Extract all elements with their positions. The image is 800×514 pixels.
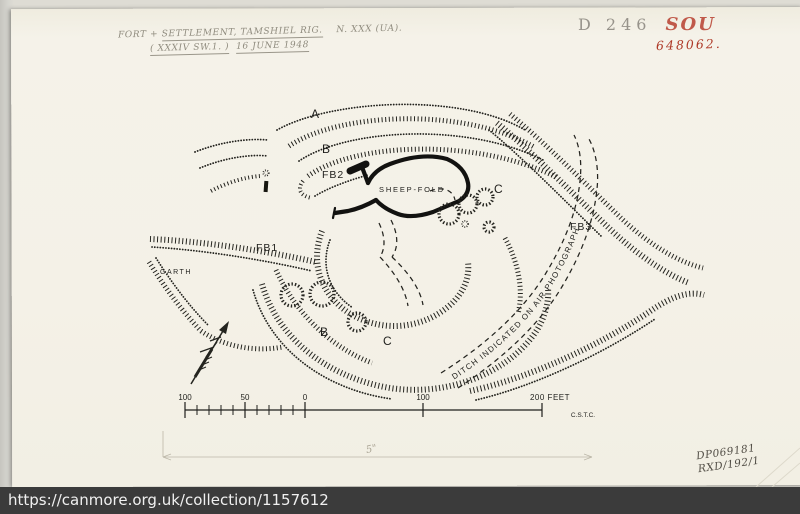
scale-bar: 100 50 0 100 200 FEET C.S.T.C. xyxy=(178,393,595,419)
scale-label-0: 0 xyxy=(303,393,308,402)
pencil-title-paren: ( XXXIV SW.1. ) xyxy=(150,42,229,56)
scale-label-100-right: 100 xyxy=(416,393,430,402)
label-rampart-a: A xyxy=(311,107,319,121)
width-note: 5" xyxy=(365,443,378,456)
site-plan-drawing: DITCH INDICATED ON AIR PHOTOGRAPH A B FB… xyxy=(0,0,800,487)
label-fb3: FB3 xyxy=(570,221,592,233)
label-fb1: FB1 xyxy=(256,242,278,254)
scale-label-50: 50 xyxy=(241,393,250,402)
label-fb2: FB2 xyxy=(322,169,344,181)
pencil-title-prefix: FORT + xyxy=(118,29,162,40)
scanned-drawing-area: DITCH INDICATED ON AIR PHOTOGRAPH A B FB… xyxy=(0,0,800,487)
catalogue-marks: D 246SOU 648062. xyxy=(578,14,722,52)
source-url-bar: https://canmore.org.uk/collection/115761… xyxy=(0,487,800,514)
fb1-bank xyxy=(150,239,316,271)
label-c-upper: C xyxy=(494,182,503,196)
surveyor-initials: C.S.T.C. xyxy=(571,412,595,419)
label-c-lower: C xyxy=(383,334,392,348)
pencil-title-ref: N. XXX (UA). xyxy=(336,24,402,36)
scale-label-100-left: 100 xyxy=(178,393,192,402)
catalogue-red-number: 648062. xyxy=(656,36,722,53)
pencil-measure-line xyxy=(163,431,592,460)
catalogue-red-code: SOU xyxy=(665,14,715,35)
outwork-arcs xyxy=(195,140,268,192)
pencil-title-date: 16 JUNE 1948 xyxy=(236,40,309,54)
label-rampart-b-upper: B xyxy=(322,142,330,156)
fb3-banks xyxy=(489,114,703,283)
scale-label-200-feet: 200 FEET xyxy=(530,393,570,402)
sheet-corner-crease xyxy=(756,448,800,487)
label-sheep-fold: SHEEP-FOLD xyxy=(379,185,445,194)
south-east-bank xyxy=(470,294,704,400)
catalogue-pencil-number: D 246 xyxy=(578,15,651,34)
label-garth: GARTH xyxy=(160,269,192,276)
source-url-text: https://canmore.org.uk/collection/115761… xyxy=(8,491,329,509)
label-b-lower: B xyxy=(320,325,328,339)
north-arrow xyxy=(191,321,229,384)
